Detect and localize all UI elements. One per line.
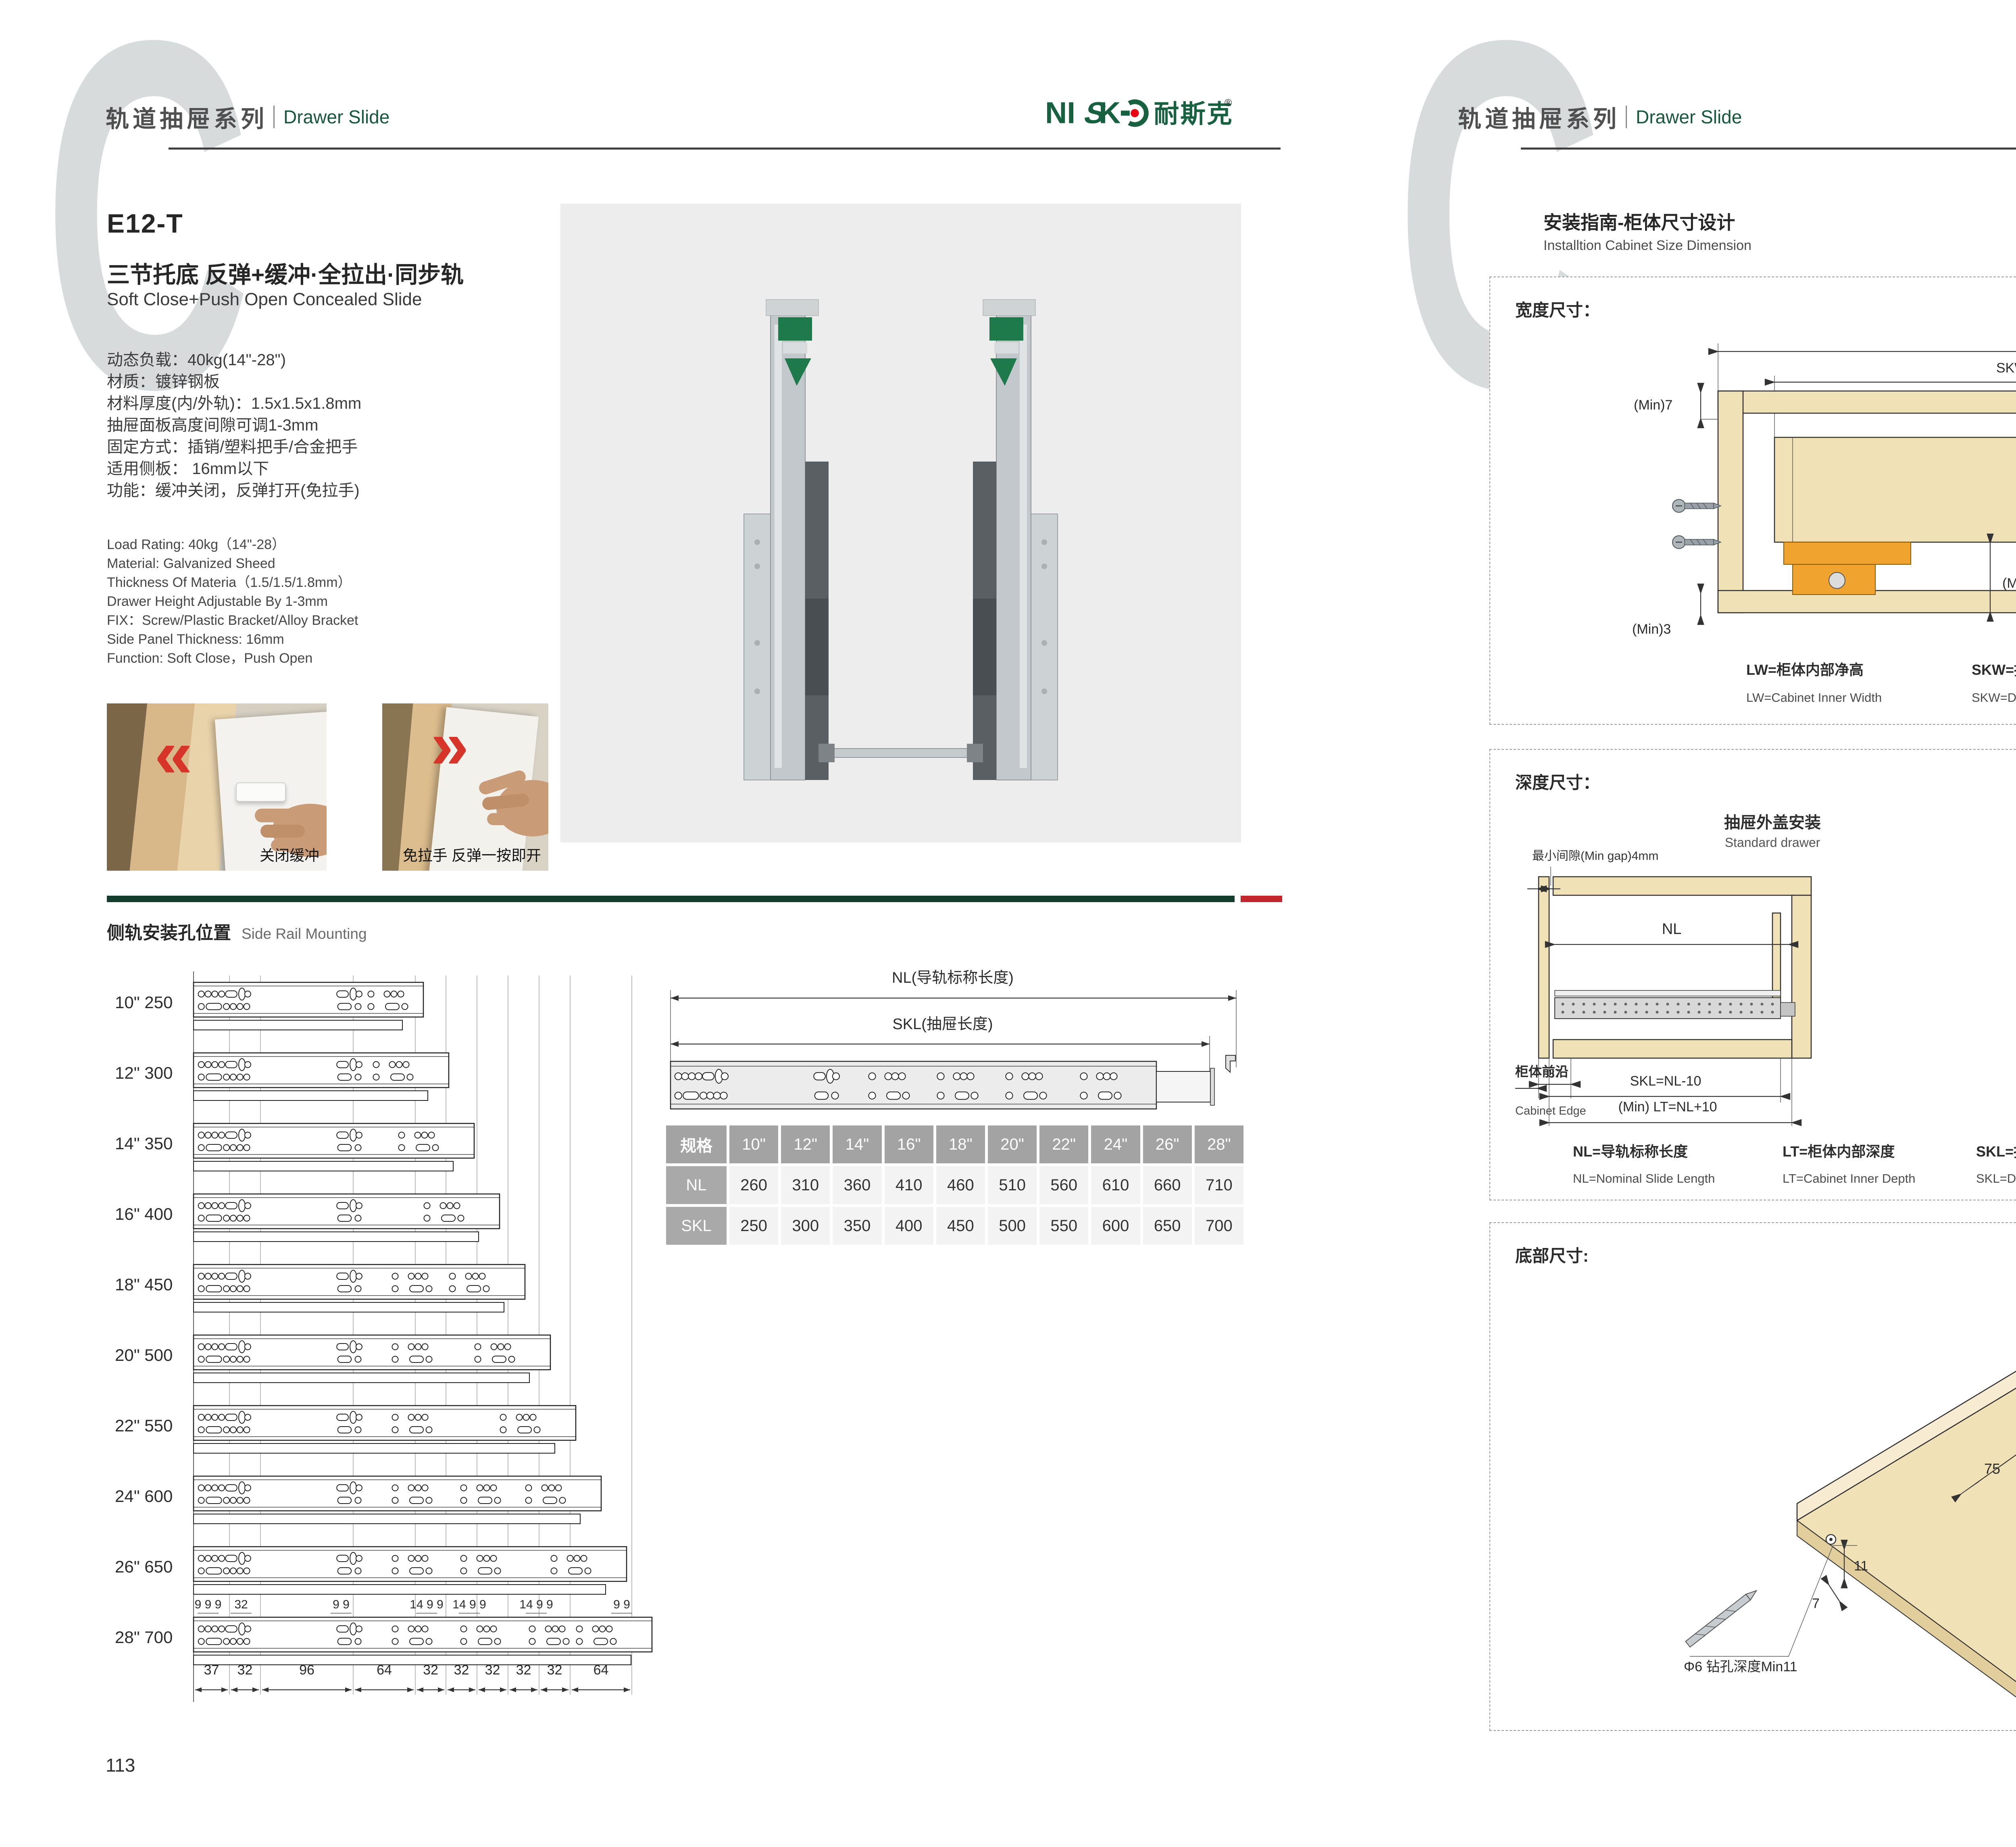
section-title-en: Side Rail Mounting	[242, 926, 367, 942]
rail-bottom-dim: 32	[485, 1662, 500, 1678]
hole-spacing-dim: 9 9 9	[195, 1598, 222, 1611]
specs-zh: 动态负载：40kg(14"-28") 材质：镀锌钢板 材料厚度(内/外轨)：1.…	[107, 349, 361, 501]
svg-text:®: ®	[1225, 97, 1232, 108]
spec-line: 抽屉面板高度间隙可调1-3mm	[107, 414, 361, 436]
sync-rod	[829, 749, 973, 757]
rail-row: 12" 300	[115, 1053, 449, 1100]
table-header-cell: 16"	[885, 1125, 933, 1163]
svg-text:NL: NL	[1662, 921, 1682, 938]
rail-bottom-dim: 32	[423, 1662, 438, 1678]
table-cell: 250	[729, 1207, 778, 1245]
rail-row: 10" 250	[115, 982, 423, 1030]
hole-spacing-dim: 9 9	[613, 1598, 630, 1611]
section-title-zh: 侧轨安装孔位置	[107, 918, 231, 944]
rail-label: 22" 550	[115, 1416, 173, 1435]
hand-image	[466, 752, 548, 844]
table-cell: 450	[936, 1207, 985, 1245]
rail-label: 28" 700	[115, 1628, 173, 1647]
table-header-cell: 18"	[936, 1125, 985, 1163]
spec-line: Side Panel Thickness: 16mm	[107, 630, 358, 649]
legend-en: SKW=Drawer Width	[1972, 691, 2016, 705]
svg-text:(Min) LT=NL+10: (Min) LT=NL+10	[1618, 1099, 1717, 1115]
series-title-en: Drawer Slide	[1636, 106, 1742, 128]
svg-text:NI: NI	[1045, 96, 1075, 130]
photo-soft-close: « 关闭缓冲	[107, 703, 327, 871]
slide-pair-image	[560, 204, 1241, 842]
width-diagram: LW SKW=LW-42 (Min)7 (Max)16	[1514, 322, 2016, 649]
svg-text:75: 75	[1984, 1460, 2000, 1477]
table-cell: 700	[1195, 1207, 1243, 1245]
divider-red-bar	[1241, 896, 1282, 902]
svg-text:NL(导轨标称长度): NL(导轨标称长度)	[892, 969, 1014, 986]
spec-line: Material: Galvanized Sheed	[107, 554, 358, 573]
open-arrows-icon: »	[431, 711, 469, 779]
rail-hole-diagram: 10" 25012" 30014" 35016" 40018" 45020" 5…	[113, 964, 673, 1722]
table-header-cell: 14"	[833, 1125, 881, 1163]
table-row-label: NL	[666, 1166, 727, 1204]
close-arrows-icon: «	[154, 720, 193, 788]
drill-bit-icon	[1685, 1588, 1758, 1647]
legend-zh: LW=柜体内部净高	[1746, 658, 1882, 679]
table-cell: 710	[1195, 1166, 1243, 1204]
table-row-label: SKL	[666, 1207, 727, 1245]
hole-spacing-dim: 14 9 9	[410, 1598, 443, 1611]
table-cell: 550	[1039, 1207, 1088, 1245]
header-rule	[169, 148, 1281, 150]
table-header-cell: 22"	[1039, 1125, 1088, 1163]
legend-zh: SKW=抽屉宽度	[1972, 658, 2016, 679]
table-cell: 300	[781, 1207, 830, 1245]
table-cell: 650	[1143, 1207, 1192, 1245]
legend-item: LT=柜体内部深度 LT=Cabinet Inner Depth	[1783, 1140, 1915, 1186]
rail-bottom-dim: 32	[516, 1662, 531, 1678]
legend-zh: SKL=抽屉长度	[1976, 1140, 2016, 1161]
svg-text:7: 7	[1812, 1596, 1820, 1611]
svg-text:SKL(抽屉长度): SKL(抽屉长度)	[892, 1016, 993, 1033]
rail-bottom-dim: 32	[547, 1662, 562, 1678]
product-title-en: Soft Close+Push Open Concealed Slide	[107, 289, 422, 310]
spec-line: 动态负载：40kg(14"-28")	[107, 349, 361, 371]
standard-drawer-title-en: Standard drawer	[1725, 835, 1820, 850]
rail-label: 20" 500	[115, 1346, 173, 1364]
legend-en: SKL=Drawer Length	[1976, 1171, 2016, 1186]
spec-line: 固定方式：插销/塑料把手/合金把手	[107, 436, 361, 458]
depth-dimension-box: 深度尺寸： 抽屉外盖安装 Standard drawer 抽屉内置安装 Buil…	[1489, 749, 2016, 1200]
spec-line: Function: Soft Close，Push Open	[107, 649, 358, 668]
table-cell: 460	[936, 1166, 985, 1204]
table-header-cell: 24"	[1091, 1125, 1140, 1163]
width-dimension-box: 宽度尺寸： LW	[1489, 277, 2016, 725]
series-title-en: Drawer Slide	[283, 106, 389, 128]
rail-bottom-dim: 96	[299, 1662, 314, 1678]
depth-box-title: 深度尺寸：	[1515, 769, 1600, 794]
legend-item: SKL=抽屉长度 SKL=Drawer Length	[1976, 1140, 2016, 1186]
table-header-cell: 26"	[1143, 1125, 1192, 1163]
table-header-cell: 10"	[729, 1125, 778, 1163]
rail-label: 14" 350	[115, 1134, 173, 1153]
table-cell: 410	[885, 1166, 933, 1204]
bottom-diagram: 75 85 11 7	[1551, 1267, 2016, 1719]
min-gap-label: 最小间隙(Min gap)4mm	[1532, 846, 1658, 863]
table-header-cell: 20"	[988, 1125, 1037, 1163]
spec-line: FIX：Screw/Plastic Bracket/Alloy Bracket	[107, 611, 358, 630]
spec-line: Load Rating: 40kg（14"-28）	[107, 535, 358, 554]
rail-hook	[1226, 1055, 1235, 1072]
nisko-logo: NI S K 耐斯克 ®	[1045, 90, 1235, 138]
page-header-left: 轨道抽屉系列 Drawer Slide	[106, 100, 389, 134]
svg-text:11: 11	[1854, 1558, 1868, 1574]
table-cell: 400	[885, 1207, 933, 1245]
photo-caption: 关闭缓冲	[260, 843, 319, 865]
svg-text:SKL=NL-10: SKL=NL-10	[1630, 1073, 1702, 1089]
legend-zh: NL=导轨标称长度	[1573, 1140, 1715, 1161]
spec-line: Drawer Height Adjustable By 1-3mm	[107, 592, 358, 611]
bottom-box-title: 底部尺寸:	[1515, 1242, 1589, 1267]
table-cell: 560	[1039, 1166, 1088, 1204]
divider-gap	[1235, 896, 1241, 902]
divider-green-bar	[107, 896, 1235, 902]
series-title-zh: 轨道抽屉系列	[1458, 100, 1620, 134]
spec-line: 功能：缓冲关闭，反弹打开(免拉手)	[107, 480, 361, 501]
table-cell: 350	[833, 1207, 881, 1245]
svg-text:耐斯克: 耐斯克	[1154, 100, 1233, 128]
table-cell: 510	[988, 1166, 1037, 1204]
rail-label: 16" 400	[115, 1204, 173, 1223]
hole-spacing-dim: 14 9 9	[452, 1598, 486, 1611]
hole-spacing-dim: 14 9 9	[519, 1598, 553, 1611]
spec-line: 材质：镀锌钢板	[107, 371, 361, 393]
catalog-spread: C 轨道抽屉系列 Drawer Slide NI S K 耐斯克 ® E12-T…	[0, 0, 2016, 1847]
section-divider	[107, 896, 1282, 902]
rail-label: 18" 450	[115, 1275, 173, 1294]
rail-label: 12" 300	[115, 1063, 173, 1082]
svg-text:(Min)7: (Min)7	[1634, 397, 1672, 413]
rail-row: 20" 500	[115, 1335, 550, 1383]
edge-en: Cabinet Edge	[1515, 1104, 1586, 1118]
side-rail-mounting-title: 侧轨安装孔位置 Side Rail Mounting	[107, 918, 367, 944]
specs-en: Load Rating: 40kg（14"-28） Material: Galv…	[107, 535, 358, 668]
rail-row: 16" 400	[115, 1194, 500, 1242]
spec-line: 适用侧板： 16mm以下	[107, 458, 361, 480]
legend-item: SKW=抽屉宽度 SKW=Drawer Width	[1972, 658, 2016, 705]
legend-item: LW=柜体内部净高 LW=Cabinet Inner Width	[1746, 658, 1882, 705]
product-photo	[560, 204, 1241, 842]
table-cell: 660	[1143, 1166, 1192, 1204]
series-title-zh: 轨道抽屉系列	[106, 100, 268, 134]
spec-line: 材料厚度(内/外轨)：1.5x1.5x1.8mm	[107, 393, 361, 414]
table-cell: 600	[1091, 1207, 1140, 1245]
slide-length-diagram: NL(导轨标称长度) SKL(抽屉长度)	[664, 967, 1251, 1122]
svg-text:Φ6 钻孔深度Min11: Φ6 钻孔深度Min11	[1684, 1659, 1797, 1674]
install-guide-title-zh: 安装指南-柜体尺寸设计	[1543, 208, 1735, 235]
photo-caption: 免拉手 反弹一按即开	[403, 843, 541, 865]
rail-row: 24" 600	[115, 1476, 601, 1524]
table-cell: 360	[833, 1166, 881, 1204]
rail-bottom-dim: 32	[454, 1662, 469, 1678]
rail-bottom-dim: 64	[594, 1662, 609, 1678]
page-header-right: 轨道抽屉系列 Drawer Slide	[1458, 100, 1742, 134]
legend-zh: LT=柜体内部深度	[1783, 1140, 1915, 1161]
legend-en: LW=Cabinet Inner Width	[1746, 691, 1882, 705]
standard-drawer-title-zh: 抽屉外盖安装	[1724, 809, 1821, 833]
product-title-zh: 三节托底 反弹+缓冲·全拉出·同步轨	[107, 256, 464, 289]
table-header-cell: 28"	[1195, 1125, 1243, 1163]
rail-row: 28" 700	[115, 1617, 652, 1665]
hole-spacing-dim: 9 9	[333, 1598, 350, 1611]
bottom-dimension-box: 底部尺寸:	[1489, 1222, 2016, 1731]
svg-text:(Min)27.5: (Min)27.5	[2002, 576, 2016, 591]
table-cell: 260	[729, 1166, 778, 1204]
rail-row: 26" 650	[115, 1547, 627, 1594]
spec-line: Thickness Of Materia（1.5/1.5/1.8mm）	[107, 573, 358, 592]
hole-spacing-dim: 32	[234, 1598, 248, 1611]
table-cell: 310	[781, 1166, 830, 1204]
rail-bottom-dim: 37	[204, 1662, 219, 1678]
page-number-left: 113	[106, 1754, 135, 1776]
edge-zh: 柜体前沿	[1515, 1061, 1586, 1080]
rail-bottom-dim: 32	[237, 1662, 253, 1678]
rail-label: 10" 250	[115, 993, 173, 1012]
rail-row: 18" 450	[115, 1265, 525, 1312]
legend-en: NL=Nominal Slide Length	[1573, 1171, 1715, 1186]
rail-bottom-dim: 64	[377, 1662, 392, 1678]
table-header-cell: 规格	[666, 1125, 727, 1163]
svg-text:SKW=LW-42: SKW=LW-42	[1996, 360, 2016, 376]
cabinet-edge-label: 柜体前沿 Cabinet Edge	[1515, 1061, 1586, 1118]
table-header-cell: 12"	[781, 1125, 830, 1163]
rail-label: 26" 650	[115, 1557, 173, 1576]
install-guide-title-en: Installtion Cabinet Size Dimension	[1543, 238, 1752, 254]
rail-label: 24" 600	[115, 1487, 173, 1506]
header-rule	[1521, 148, 2016, 150]
header-separator	[1626, 106, 1627, 128]
width-box-title: 宽度尺寸：	[1515, 297, 1600, 321]
svg-text:K: K	[1099, 96, 1120, 130]
svg-text:(Min)3: (Min)3	[1632, 622, 1671, 637]
legend-item: NL=导轨标称长度 NL=Nominal Slide Length	[1573, 1140, 1715, 1186]
table-cell: 610	[1091, 1166, 1140, 1204]
table-cell: 500	[988, 1207, 1037, 1245]
photo-push-open: » 免拉手 反弹一按即开	[382, 703, 548, 871]
logo-target-icon	[1121, 102, 1146, 124]
header-separator	[273, 106, 275, 128]
model-code: E12-T	[107, 208, 183, 239]
legend-en: LT=Cabinet Inner Depth	[1783, 1171, 1915, 1186]
rail-row: 14" 350	[115, 1123, 474, 1171]
size-table: 规格10"12"14"16"18"20"22"24"26"28"NL260310…	[666, 1125, 1243, 1245]
rail-row: 22" 550	[115, 1406, 576, 1453]
